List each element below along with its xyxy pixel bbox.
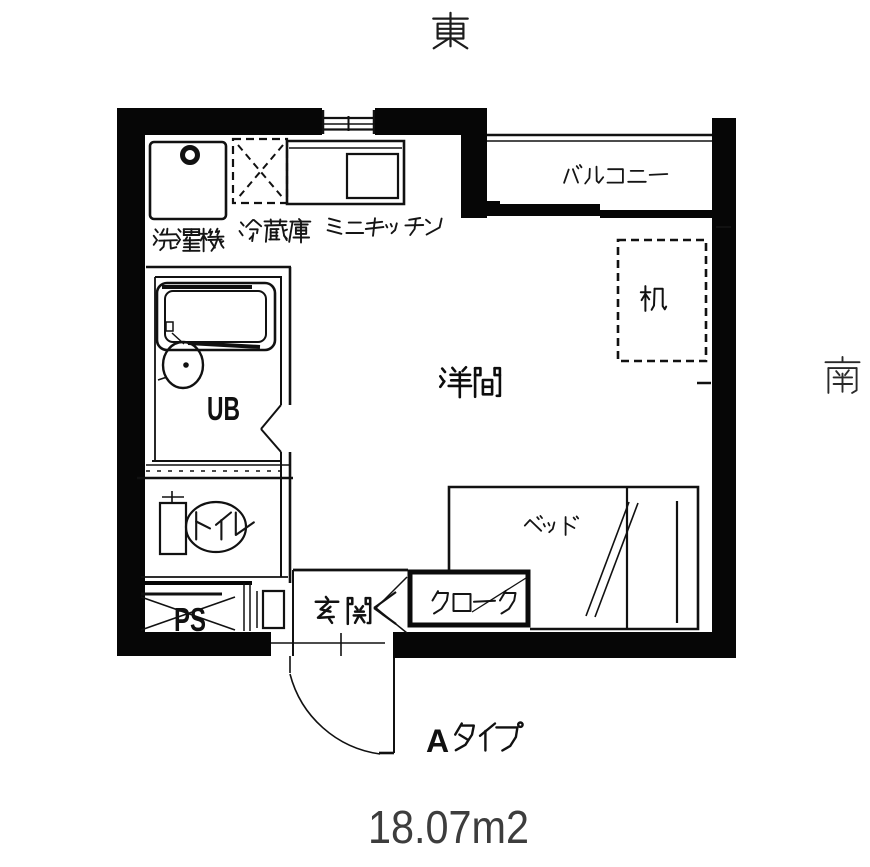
svg-text:18.07m2: 18.07m2 — [368, 801, 529, 853]
svg-text:PS: PS — [174, 601, 206, 638]
svg-text:UB: UB — [207, 390, 240, 427]
svg-text:A: A — [426, 723, 449, 759]
